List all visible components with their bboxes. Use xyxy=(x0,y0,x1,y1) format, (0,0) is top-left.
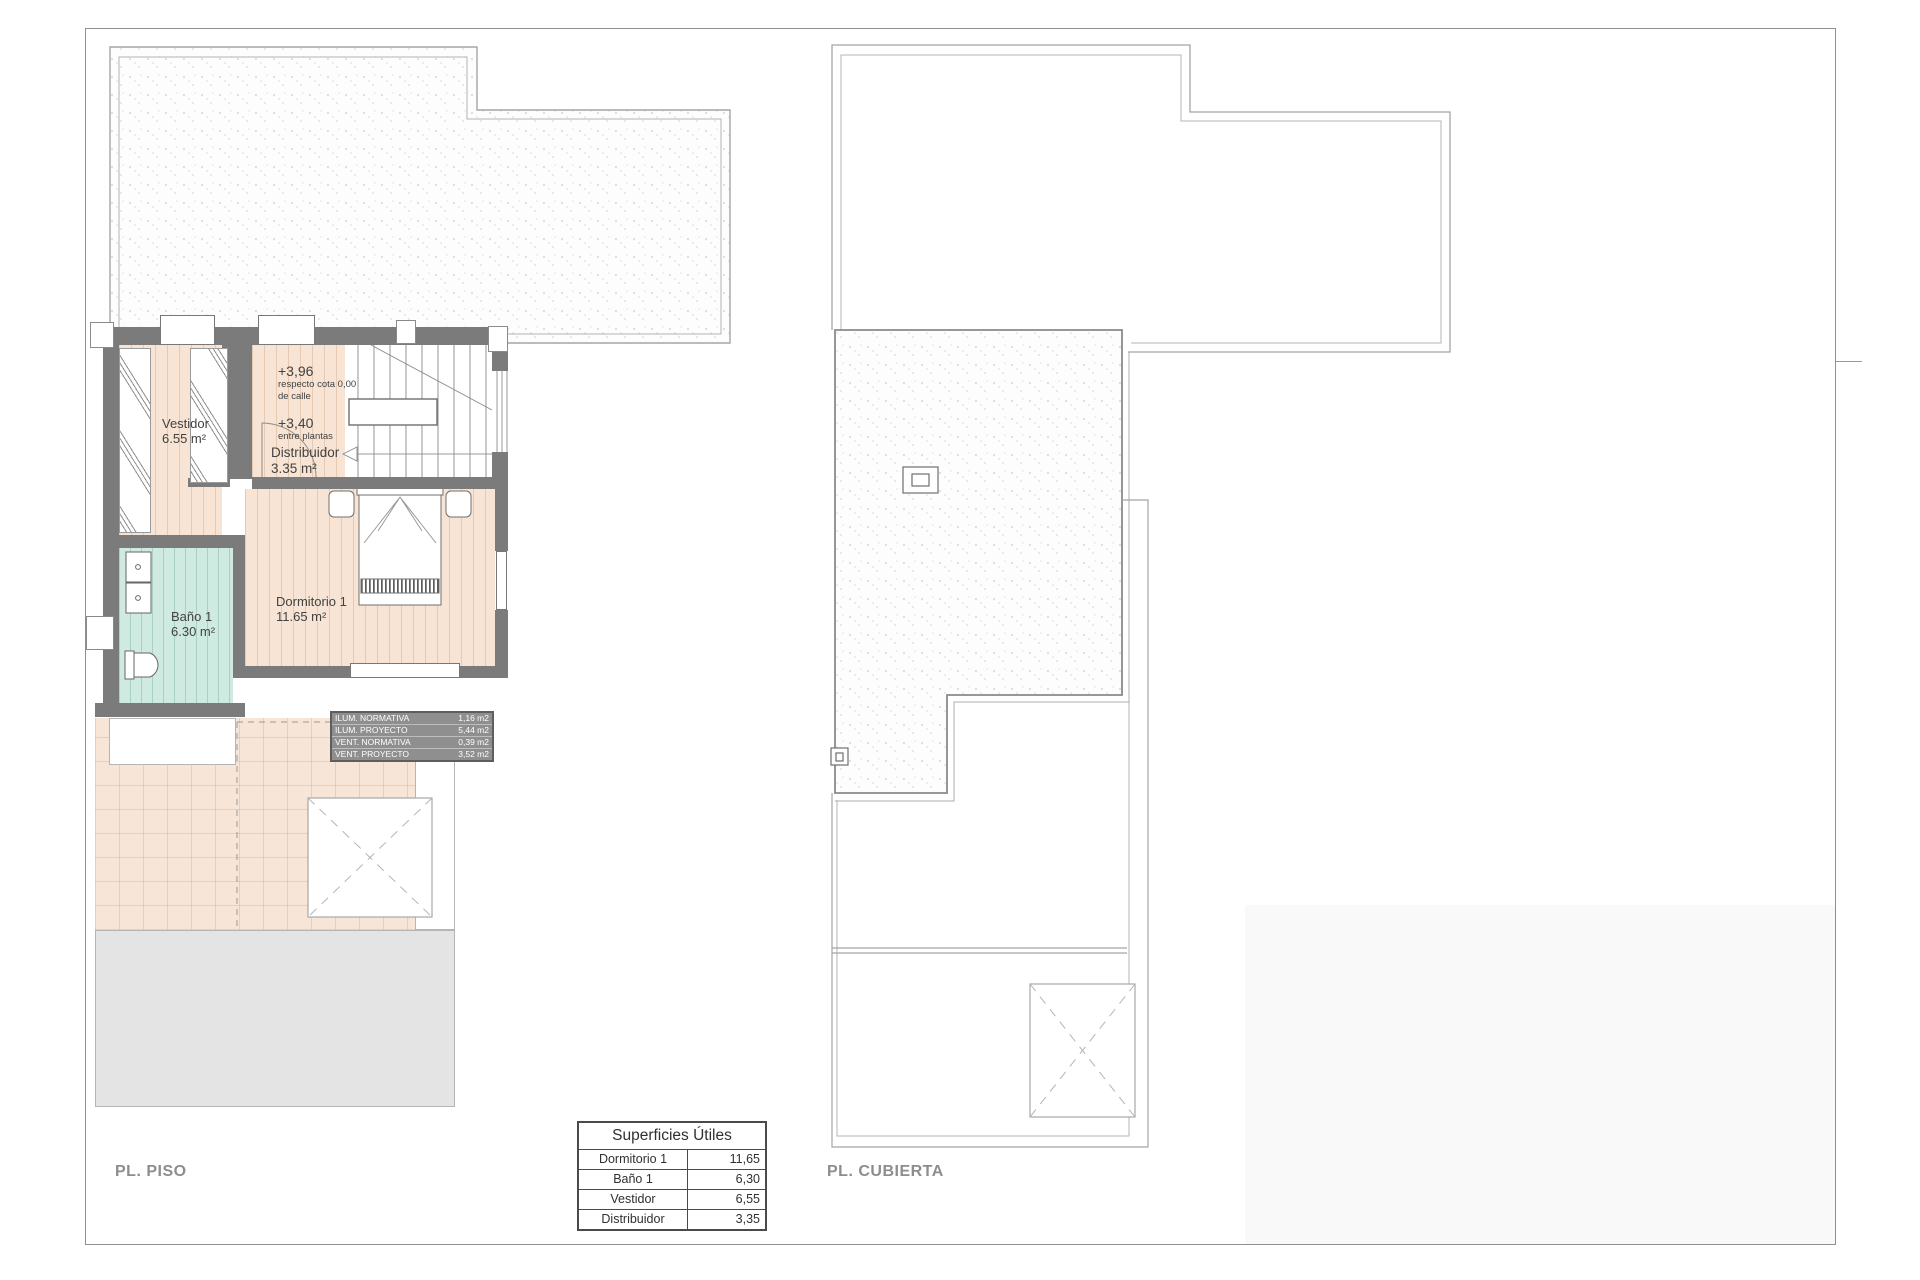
level-between: +3,40 xyxy=(278,415,356,431)
table-row: Vestidor 6,55 xyxy=(579,1189,765,1209)
window-distribuidor xyxy=(258,315,315,345)
skylight-right xyxy=(1030,984,1135,1117)
room-name: Dormitorio 1 xyxy=(276,595,347,610)
roof-chimney xyxy=(831,748,848,765)
room-name: Distribuidor xyxy=(271,445,339,461)
room-area: 6.30 m² xyxy=(171,625,215,640)
toilet-bowl xyxy=(134,653,158,677)
pilaster-3 xyxy=(488,326,508,352)
table-row: ILUM. NORMATIVA 1,16 m2 xyxy=(332,713,492,724)
level-between-note: entre plantas xyxy=(278,431,356,443)
level-upper: +3,96 xyxy=(278,363,356,379)
roof-perimeter xyxy=(832,45,1450,352)
wall-dorm-right-a xyxy=(495,489,508,551)
table-row: VENT. NORMATIVA 0,39 m2 xyxy=(332,736,492,748)
room-area: 6.55 m² xyxy=(162,432,209,447)
wall-bath-bottom xyxy=(95,703,245,717)
wall-dormitorio-top xyxy=(252,477,508,489)
level-upper-note1: respecto cota 0,00 xyxy=(278,379,356,391)
vestidor-label: Vestidor 6.55 m² xyxy=(162,417,209,447)
distribuidor-label: Distribuidor 3.35 m² xyxy=(271,445,339,476)
table-row: ILUM. PROYECTO 5,44 m2 xyxy=(332,724,492,736)
bathroom-fixtures xyxy=(125,552,158,679)
dormitorio-label: Dormitorio 1 11.65 m² xyxy=(276,595,347,625)
drawing-sheet: Vestidor 6.55 m² +3,96 respecto cota 0,0… xyxy=(0,0,1920,1280)
bed xyxy=(329,486,471,605)
vent-illum-table: ILUM. NORMATIVA 1,16 m2 ILUM. PROYECTO 5… xyxy=(330,711,494,762)
right-plan-title: PL. CUBIERTA xyxy=(827,1163,944,1181)
staircase xyxy=(343,345,507,477)
level-annotations: +3,96 respecto cota 0,00 de calle +3,40 … xyxy=(278,363,356,443)
table-row: Dormitorio 1 11,65 xyxy=(579,1150,765,1169)
wall-dorm-right-b xyxy=(495,610,508,678)
left-plan-title: PL. PISO xyxy=(115,1163,187,1181)
wall-dorm-bottom-a xyxy=(233,666,352,678)
closet-left xyxy=(119,348,151,533)
linework-layer xyxy=(0,0,1920,1280)
table-row: Distribuidor 3,35 xyxy=(579,1209,765,1229)
pilaster-2 xyxy=(396,320,416,344)
roof-vent xyxy=(903,467,938,493)
window-dormitorio-south xyxy=(350,663,460,678)
room-name: Baño 1 xyxy=(171,610,215,625)
pilaster-4 xyxy=(86,616,114,650)
room-area: 11.65 m² xyxy=(276,610,347,625)
table-row: VENT. PROYECTO 3,52 m2 xyxy=(332,748,492,760)
toilet-tank xyxy=(125,651,134,679)
skylight-left xyxy=(308,798,432,917)
table-row: Baño 1 6,30 xyxy=(579,1169,765,1189)
solarium-terrace xyxy=(110,47,730,343)
pilaster-1 xyxy=(90,322,114,348)
level-upper-note2: de calle xyxy=(278,391,356,403)
areas-table: Superficies Útiles Dormitorio 1 11,65 Ba… xyxy=(577,1121,767,1231)
areas-table-title: Superficies Útiles xyxy=(579,1123,765,1150)
wall-stair-right-b xyxy=(492,452,508,478)
wall-bath-dorm-divider xyxy=(233,548,245,678)
room-area: 3.35 m² xyxy=(271,461,339,477)
bano-label: Baño 1 6.30 m² xyxy=(171,610,215,640)
upper-roof xyxy=(835,330,1129,801)
room-name: Vestidor xyxy=(162,417,209,432)
window-dormitorio-east xyxy=(496,551,507,610)
window-vestidor xyxy=(160,315,215,345)
wall-bath-top xyxy=(103,535,245,548)
